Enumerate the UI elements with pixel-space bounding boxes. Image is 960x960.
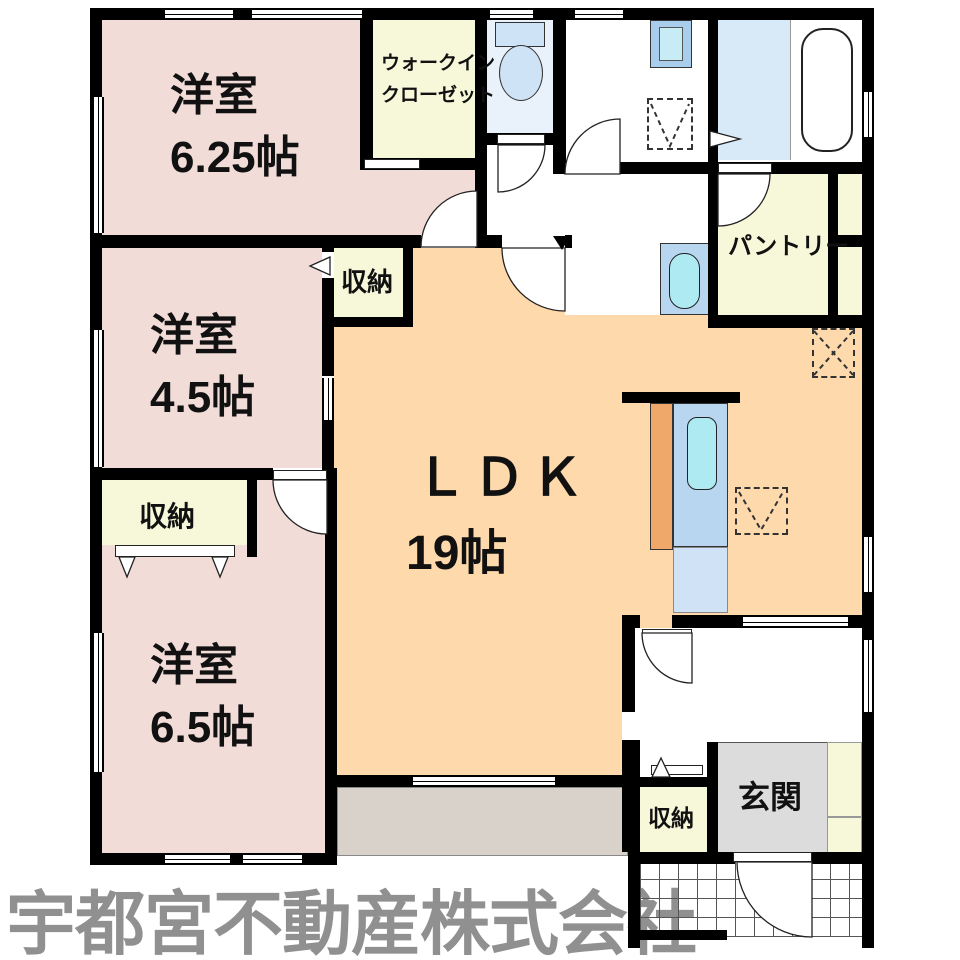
room-65-size: 6.5帖 [150,704,255,752]
ldk-label: ＬＤＫ [415,450,589,507]
room-45-size: 4.5帖 [150,374,255,422]
room-65-label: 洋室 [150,642,238,690]
closet-hall-folding-door-icon [652,758,670,777]
closet-hall-label: 収納 [648,806,694,831]
room-625-size: 6.25帖 [170,134,300,182]
pantry-label: パントリー [728,234,849,260]
washing-machine-v-mark [651,104,689,146]
walk-in-closet-label-1: ウォークイン [381,54,495,75]
genkan-label: 玄関 [738,780,802,815]
front-door-arc [737,862,812,937]
toilet-door-arc [498,145,545,192]
walk-in-closet-label-2: クローゼット [381,86,495,107]
room-45-label: 洋室 [150,312,238,360]
ldk-door-arc [502,248,565,311]
wall-end-pointer [627,618,640,632]
closet-left-bifold-icon [212,557,228,577]
refrigerator-v-mark [739,492,783,530]
pantry-door-arc [718,174,770,226]
washroom-door-arc [565,119,620,174]
closet-left-label: 収納 [139,502,195,533]
closet-left-bifold-icon [119,557,135,577]
room-625-door-arc [421,191,477,247]
floor-plan: 宇都宮不動産株式会社 [0,0,960,960]
closet-top-folding-door-icon [310,257,330,275]
room-625-label: 洋室 [170,72,258,120]
room-65-door-arc [273,480,327,534]
hall-door-arc [642,633,692,683]
closet-top-label: 収納 [341,268,393,297]
ldk-size: 19帖 [406,528,507,581]
bath-folding-door-icon [710,131,740,147]
